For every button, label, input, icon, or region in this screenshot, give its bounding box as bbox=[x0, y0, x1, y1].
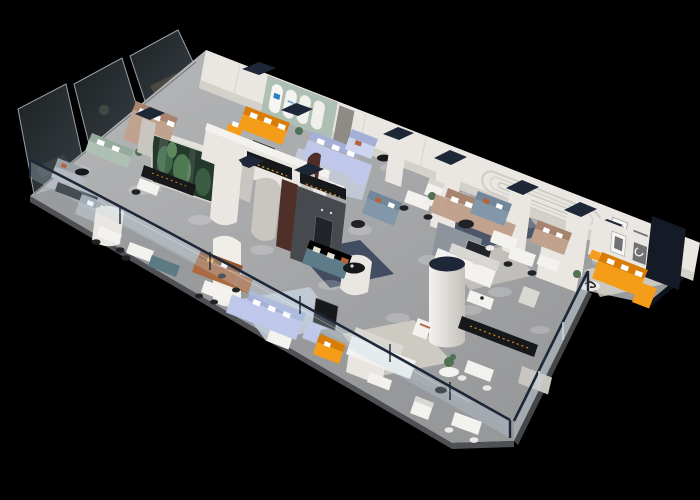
wing-end-wall bbox=[645, 216, 686, 290]
cylinder-cap bbox=[429, 257, 465, 272]
cylindrical-column bbox=[429, 257, 465, 348]
round-table bbox=[75, 169, 89, 176]
plant-table bbox=[439, 367, 459, 377]
plant bbox=[573, 270, 581, 278]
plant bbox=[295, 127, 303, 135]
round-coffee-table bbox=[343, 263, 365, 274]
floorplan-svg: N bbox=[0, 0, 700, 500]
plant-silhouette bbox=[99, 105, 109, 115]
showroom-render: N bbox=[0, 0, 700, 500]
